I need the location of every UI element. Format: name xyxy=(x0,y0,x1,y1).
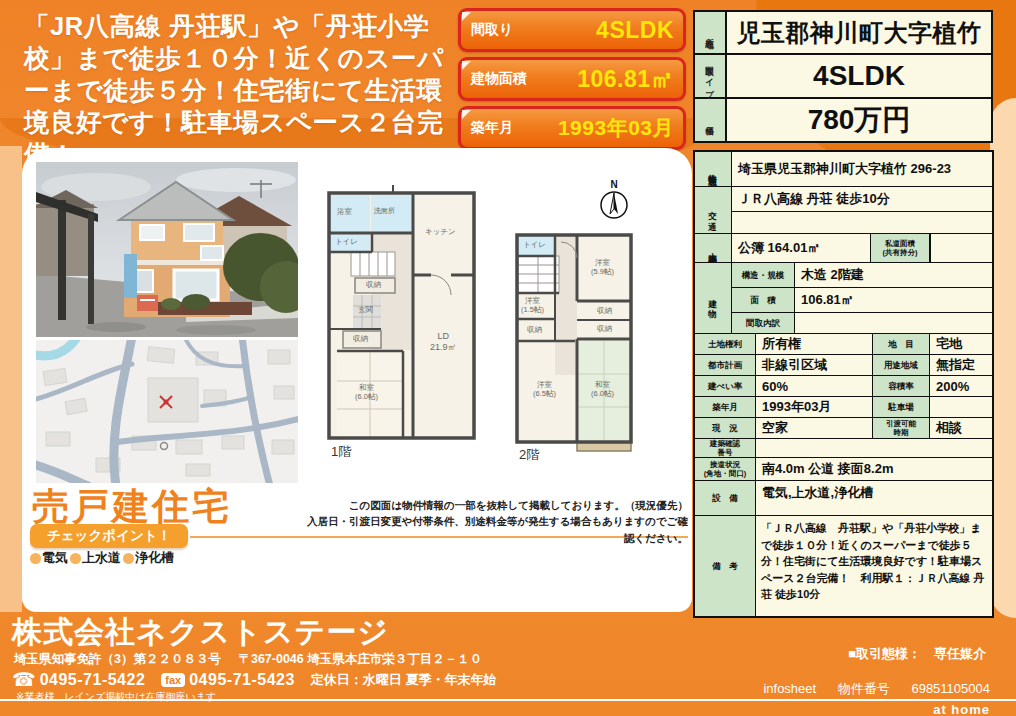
feature-item: 浄化槽 xyxy=(123,549,174,567)
spec-value: 106.81㎡ xyxy=(577,64,674,95)
room-label-yoshitsu-65: 洋室 (6.5帖) xyxy=(533,380,556,399)
row-value: 4SLDK xyxy=(727,55,991,97)
row-value: 空家 xyxy=(756,418,873,438)
compass-graphic xyxy=(599,190,629,220)
room-label-toilet: トイレ xyxy=(335,237,358,246)
floorplan-1f: 浴室 洗面所 トイレ キッチン 収納 玄関 収納 和室 (6.0帖) LD 21… xyxy=(327,185,477,441)
row-label: 建 物 xyxy=(695,263,732,333)
sub-label: 構造・規模 xyxy=(732,263,795,287)
room-label-washroom: 洗面所 xyxy=(374,207,395,216)
table-row-pair: 現 況 空家 引渡可能 時期 相談 xyxy=(695,418,992,439)
infosheet-label: infosheet xyxy=(763,681,816,696)
row-value xyxy=(756,439,992,457)
spec-box-built-date: 築年月 1993年03月 xyxy=(458,106,686,150)
property-number-label: 物件番号 xyxy=(838,681,890,696)
price-summary-table: 所在地 児玉郡神川町大字植竹 間取タイプ 4SLDK 価格 780万円 xyxy=(693,10,993,143)
row-label: 間取タイプ xyxy=(695,55,727,97)
company-address: 〒367-0046 埼玉県本庄市栄３丁目２－１０ xyxy=(238,652,482,666)
table-row: 価格 780万円 xyxy=(695,99,991,141)
compass-n-label: N xyxy=(596,180,632,190)
checkpoint-badge: チェックポイント！ xyxy=(30,524,188,548)
bullet-dot-icon xyxy=(70,553,81,564)
table-row-remarks: 備 考 「ＪＲ八高線 丹荘駅」や「丹荘小学校」まで徒歩１０分！近くのスーパーまで… xyxy=(695,516,992,616)
row-value: 60% xyxy=(756,376,873,396)
location-map xyxy=(36,340,298,483)
feature-list: 電気 上水道 浄化槽 xyxy=(30,549,176,567)
table-row-pair: 土地権利 所有権 地 目 宅地 xyxy=(695,334,992,355)
row-label: 接道状況 (角地・間口) xyxy=(695,458,756,480)
spec-value: 1993年03月 xyxy=(558,114,674,142)
row-value-2 xyxy=(930,397,992,417)
room-label-closet: 収納 xyxy=(353,334,368,343)
floorplan-1f-title: 1階 xyxy=(331,443,351,461)
row-label: 土地権利 xyxy=(695,334,756,354)
row-value: 埼玉県児玉郡神川町大字植竹 296-23 xyxy=(732,152,992,186)
fax-icon: fax xyxy=(161,673,185,687)
row-value: 所有権 xyxy=(756,334,873,354)
table-row-pair: 建ぺい率 60% 容積率 200% xyxy=(695,376,992,397)
room-label-closet: 収納 xyxy=(597,324,612,333)
tel-number: 0495-71-5422 xyxy=(40,671,146,689)
table-row-land-area: 土地面積 公簿 164.01㎡ 私道面積 (共有持分) xyxy=(695,234,992,263)
bullet-dot-icon xyxy=(123,553,134,564)
floorplan-2f: トイレ 洋室 (5.9帖) 洋室 (1.5帖) 収納 収納 収納 洋室 (6.5… xyxy=(515,228,639,454)
row-value: 780万円 xyxy=(727,99,991,141)
fax-number: 0495-71-5423 xyxy=(189,671,295,689)
row-label-2: 駐車場 xyxy=(873,397,930,417)
sub-value: 106.81㎡ xyxy=(795,288,992,312)
exterior-photo-graphic xyxy=(36,162,298,337)
room-label-closet: 収納 xyxy=(527,325,542,334)
row-label: 設 備 xyxy=(695,481,756,515)
room-label-closet: 収納 xyxy=(366,280,381,289)
room-label-bath: 浴室 xyxy=(337,207,352,216)
room-label-closet: 収納 xyxy=(597,306,612,315)
holiday-note: 定休日：水曜日 夏季・年末年始 xyxy=(311,671,497,689)
property-detail-table: 物件所在地 埼玉県児玉郡神川町大字植竹 296-23 交 通 ＪＲ八高線 丹荘 … xyxy=(693,150,994,618)
row-label: 物件所在地 xyxy=(695,152,732,186)
room-label-entrance: 玄関 xyxy=(358,305,373,314)
room-label-washitsu: 和室 (6.0帖) xyxy=(355,383,378,402)
table-row-pair: 築年月 1993年03月 駐車場 xyxy=(695,397,992,418)
license-row: 埼玉県知事免許（3）第２２０８３号 〒367-0046 埼玉県本庄市栄３丁目２－… xyxy=(14,651,482,668)
row-value-2 xyxy=(930,234,992,262)
left-strip xyxy=(0,146,22,612)
compass-north-icon: N xyxy=(596,180,632,230)
table-row-utilities: 設 備 電気,上水道,浄化槽 xyxy=(695,481,992,516)
row-value: ＪＲ八高線 丹荘 徒歩10分 xyxy=(732,187,992,212)
transaction-type: ■取引態様： 専任媒介 xyxy=(848,645,986,663)
floorplan-2f-graphic xyxy=(515,228,639,454)
row-value-2 xyxy=(732,212,992,233)
spec-box-madori: 間取り 4SLDK xyxy=(458,8,686,52)
row-label: 建ぺい率 xyxy=(695,376,756,396)
row-value: 児玉郡神川町大字植竹 xyxy=(727,12,991,53)
table-row-access: 交 通 ＪＲ八高線 丹荘 徒歩10分 xyxy=(695,187,992,234)
table-row-road: 接道状況 (角地・間口) 南4.0m 公道 接面8.2m xyxy=(695,458,992,481)
room-label-washitsu: 和室 (6.0帖) xyxy=(591,380,614,399)
location-map-graphic xyxy=(36,340,298,483)
table-row-building: 建 物 構造・規模 木造 2階建 面 積 106.81㎡ 間取内訳 xyxy=(695,263,992,334)
row-label-2: 引渡可能 時期 xyxy=(873,418,930,438)
table-row: 間取タイプ 4SLDK xyxy=(695,55,991,99)
phone-icon: ☎ xyxy=(12,668,36,691)
table-row: 所在地 児玉郡神川町大字植竹 xyxy=(695,12,991,55)
row-label: 土地面積 xyxy=(695,234,732,262)
sub-label: 面 積 xyxy=(732,288,795,312)
row-label: 備 考 xyxy=(695,516,756,616)
row-value: 公簿 164.01㎡ xyxy=(732,234,871,262)
row-label: 現 況 xyxy=(695,418,756,438)
table-row-pair: 都市計画 非線引区域 用途地域 無指定 xyxy=(695,355,992,376)
athome-logo: at home xyxy=(933,702,990,716)
spec-box-column: 間取り 4SLDK 建物面積 106.81㎡ 築年月 1993年03月 xyxy=(458,8,686,155)
spec-value: 4SLDK xyxy=(596,17,674,44)
row-label: 建築確認 番号 xyxy=(695,439,756,457)
row-label-2: 容積率 xyxy=(873,376,930,396)
row-label-2: 私道面積 (共有持分) xyxy=(871,234,930,262)
disclaimer-text: この図面は物件情報の一部を抜粋して掲載しております。（現況優先） 入居日・引渡日… xyxy=(300,497,688,546)
row-label: 都市計画 xyxy=(695,355,756,375)
footer-divider xyxy=(0,699,1016,701)
sub-value xyxy=(795,313,992,333)
row-label: 築年月 xyxy=(695,397,756,417)
row-value-2: 200% xyxy=(930,376,992,396)
room-label-kitchen: キッチン xyxy=(425,227,456,236)
table-row-location: 物件所在地 埼玉県児玉郡神川町大字植竹 296-23 xyxy=(695,152,992,187)
bullet-dot-icon xyxy=(30,553,41,564)
sub-value: 木造 2階建 xyxy=(795,263,992,287)
spec-label: 建物面積 xyxy=(471,70,527,88)
row-label-2: 地 目 xyxy=(873,334,930,354)
row-value: 「ＪＲ八高線 丹荘駅」や「丹荘小学校」まで徒歩１０分！近くのスーパーまで徒歩５分… xyxy=(756,516,992,616)
table-row-confirmation: 建築確認 番号 xyxy=(695,439,992,458)
row-value-2: 相談 xyxy=(930,418,992,438)
room-label-yoshitsu-15: 洋室 (1.5帖) xyxy=(521,296,544,315)
disclaimer-line-2: 入居日・引渡日変更や付帯条件、別途料金等が発生する場合もありますのでご確認くださ… xyxy=(300,513,688,546)
disclaimer-line-1: この図面は物件情報の一部を抜粋して掲載しております。（現況優先） xyxy=(300,497,688,513)
row-value-2: 無指定 xyxy=(930,355,992,375)
floorplan-2f-title: 2階 xyxy=(519,446,539,464)
company-name: 株式会社ネクストステージ xyxy=(12,612,389,653)
room-label-ld: LD 21.9㎡ xyxy=(430,331,457,354)
row-label-2: 用途地域 xyxy=(873,355,930,375)
exterior-photo xyxy=(36,162,298,337)
row-label: 所在地 xyxy=(695,12,727,53)
feature-item: 電気 xyxy=(30,549,68,567)
feature-item: 上水道 xyxy=(70,549,121,567)
room-label-toilet: トイレ xyxy=(523,240,546,249)
row-label: 価格 xyxy=(695,99,727,141)
feature-label: 電気 xyxy=(42,549,68,567)
row-value: 1993年03月 xyxy=(756,397,873,417)
room-label-yoshitsu-59: 洋室 (5.9帖) xyxy=(591,258,614,277)
row-label: 交 通 xyxy=(695,187,732,233)
headline-catch-copy: 「JR八高線 丹荘駅」や「丹荘小学校」まで徒歩１０分！近くのスーパーまで徒歩５分… xyxy=(24,10,466,170)
feature-label: 上水道 xyxy=(82,549,121,567)
spec-label: 築年月 xyxy=(471,119,513,137)
agent-note: ※業者様 レインズ掲載中は在庫御座います。 xyxy=(16,690,226,704)
infosheet-row: infosheet 物件番号 69851105004 xyxy=(763,680,990,698)
spec-box-building-area: 建物面積 106.81㎡ xyxy=(458,57,686,101)
sub-label: 間取内訳 xyxy=(732,313,795,333)
row-value: 非線引区域 xyxy=(756,355,873,375)
floorplan-1f-graphic xyxy=(327,185,477,441)
row-value-2: 宅地 xyxy=(930,334,992,354)
row-value: 南4.0m 公道 接面8.2m xyxy=(756,458,992,480)
feature-label: 浄化槽 xyxy=(135,549,174,567)
property-number: 69851105004 xyxy=(911,681,990,696)
license-number: 埼玉県知事免許（3）第２２０８３号 xyxy=(14,652,221,666)
phone-row: ☎ 0495-71-5422 fax 0495-71-5423 定休日：水曜日 … xyxy=(12,668,496,691)
spec-label: 間取り xyxy=(471,21,513,39)
row-value: 電気,上水道,浄化槽 xyxy=(756,481,992,515)
